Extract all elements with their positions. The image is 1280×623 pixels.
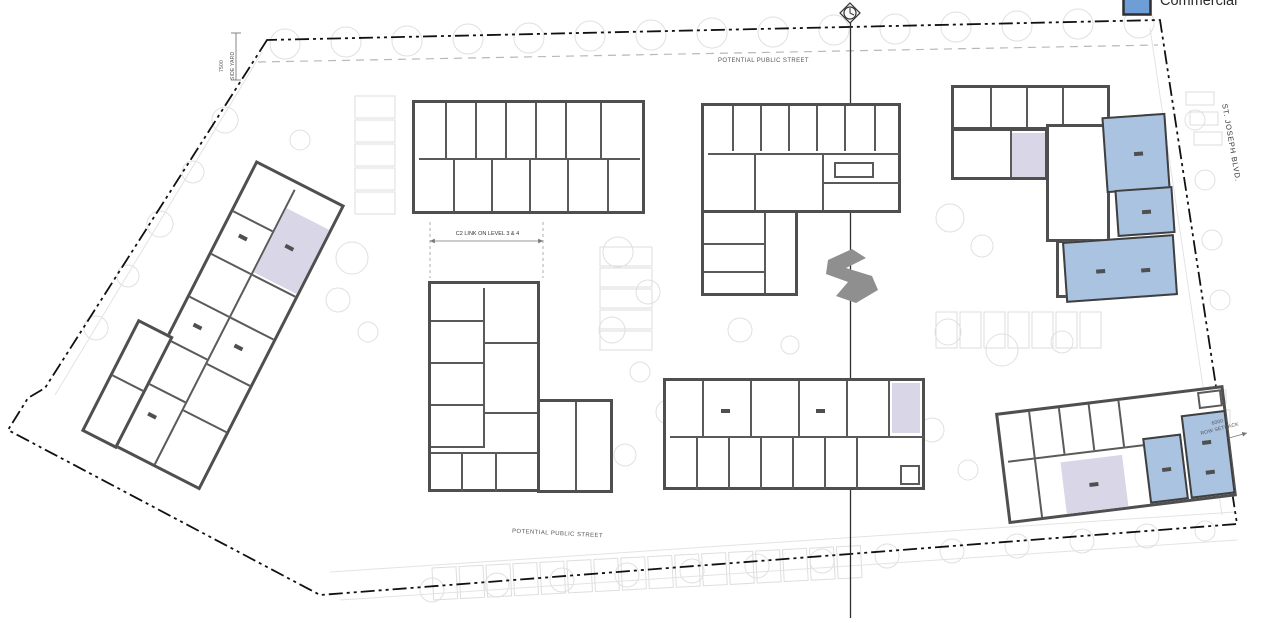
- interior-wall: [535, 103, 537, 158]
- section-marker-icon: [840, 3, 860, 23]
- building-c-annex: [537, 399, 613, 493]
- interior-wall: [754, 155, 756, 210]
- casework-mark: [1134, 152, 1143, 157]
- interior-wall: [189, 296, 229, 318]
- interior-wall: [764, 213, 766, 293]
- legend-commercial-label: Commercial: [1160, 0, 1237, 9]
- interior-wall: [575, 402, 577, 490]
- section-line: [840, 3, 860, 618]
- building-d: [701, 103, 901, 213]
- interior-wall: [491, 160, 493, 211]
- interior-wall: [146, 381, 186, 403]
- building-f-west-wing: [951, 128, 1048, 180]
- casework-mark: [234, 344, 244, 352]
- casework-mark: [721, 409, 730, 413]
- interior-wall: [183, 409, 227, 433]
- casework-mark: [193, 323, 203, 331]
- casework-mark: [1142, 210, 1151, 215]
- interior-wall: [607, 160, 609, 211]
- interior-wall: [485, 412, 537, 414]
- interior-wall: [453, 160, 455, 211]
- interior-wall: [798, 381, 800, 436]
- casework-mark: [1202, 440, 1211, 445]
- side-yard-label: SIDE YARD: [230, 52, 236, 80]
- interior-wall: [704, 271, 764, 273]
- corridor-wall: [708, 153, 900, 155]
- side-yard-dim-label: 7500: [219, 60, 225, 72]
- casework-mark: [1162, 467, 1171, 472]
- interior-wall: [1117, 401, 1125, 447]
- interior-wall: [431, 452, 537, 454]
- interior-wall: [990, 88, 992, 127]
- casework-mark: [238, 234, 248, 242]
- interior-wall: [529, 160, 531, 211]
- interior-wall: [475, 103, 477, 158]
- commercial-unit: [1062, 234, 1178, 303]
- interior-wall: [431, 404, 483, 406]
- interior-wall: [505, 103, 507, 158]
- casework-mark: [1141, 268, 1150, 273]
- interior-wall: [844, 106, 846, 151]
- interior-wall: [888, 381, 890, 436]
- interior-wall: [1058, 408, 1066, 454]
- commercial-unit: [1101, 113, 1170, 193]
- interior-wall: [702, 381, 704, 436]
- casework-mark: [1096, 269, 1105, 274]
- interior-wall: [824, 438, 826, 489]
- interior-wall: [704, 243, 764, 245]
- interior-wall: [750, 381, 752, 436]
- interior-wall: [112, 374, 143, 391]
- building-e: [663, 378, 925, 490]
- interior-wall: [445, 103, 447, 158]
- interior-wall: [822, 182, 900, 184]
- c2-link-label: C2 LINK ON LEVEL 3 & 4: [429, 231, 546, 237]
- casework-mark: [816, 409, 825, 413]
- stair-core: [1197, 389, 1223, 409]
- interior-wall: [1062, 88, 1064, 127]
- landscape-art-blob: [826, 249, 878, 303]
- interior-wall: [1034, 459, 1043, 517]
- building-c: [428, 281, 540, 492]
- interior-wall: [792, 438, 794, 489]
- building-d-leg: [701, 210, 798, 296]
- interior-wall: [565, 103, 567, 158]
- legend-commercial-swatch: [1122, 0, 1152, 16]
- interior-wall: [495, 454, 497, 492]
- casework-mark: [1206, 470, 1215, 475]
- interior-wall: [431, 362, 483, 364]
- interior-wall: [816, 106, 818, 151]
- lobby-core: [834, 162, 874, 178]
- interior-wall: [856, 438, 858, 489]
- amenity-unit: [1061, 455, 1129, 514]
- interior-wall: [167, 339, 207, 361]
- site-plan-canvas: POTENTIAL PUBLIC STREET POTENTIAL PUBLIC…: [0, 0, 1280, 623]
- street-label-top: POTENTIAL PUBLIC STREET: [718, 58, 809, 64]
- interior-wall: [1088, 404, 1096, 450]
- interior-wall: [788, 106, 790, 151]
- casework-mark: [1089, 482, 1098, 487]
- commercial-unit: [1114, 186, 1175, 237]
- stair-core: [900, 465, 920, 485]
- interior-wall: [846, 381, 848, 436]
- interior-wall: [211, 253, 251, 275]
- interior-wall: [567, 160, 569, 211]
- amenity-unit: [1012, 133, 1045, 177]
- interior-wall: [1028, 412, 1036, 458]
- building-b: [412, 100, 645, 214]
- interior-wall: [760, 106, 762, 151]
- interior-wall: [1026, 88, 1028, 127]
- interior-wall: [728, 438, 730, 489]
- corridor-wall: [483, 288, 485, 448]
- interior-wall: [874, 106, 876, 151]
- interior-wall: [760, 438, 762, 489]
- interior-wall: [461, 454, 463, 492]
- interior-wall: [230, 317, 274, 341]
- interior-wall: [696, 438, 698, 489]
- interior-wall: [485, 342, 537, 344]
- amenity-unit: [892, 383, 920, 433]
- interior-wall: [732, 106, 734, 151]
- interior-wall: [207, 363, 251, 387]
- interior-wall: [233, 210, 273, 232]
- commercial-unit: [1142, 433, 1189, 503]
- interior-wall: [431, 446, 483, 448]
- corridor-wall: [670, 436, 924, 438]
- interior-wall: [600, 103, 602, 158]
- casework-mark: [147, 412, 157, 420]
- interior-wall: [431, 320, 483, 322]
- building-f-core: [1046, 124, 1110, 242]
